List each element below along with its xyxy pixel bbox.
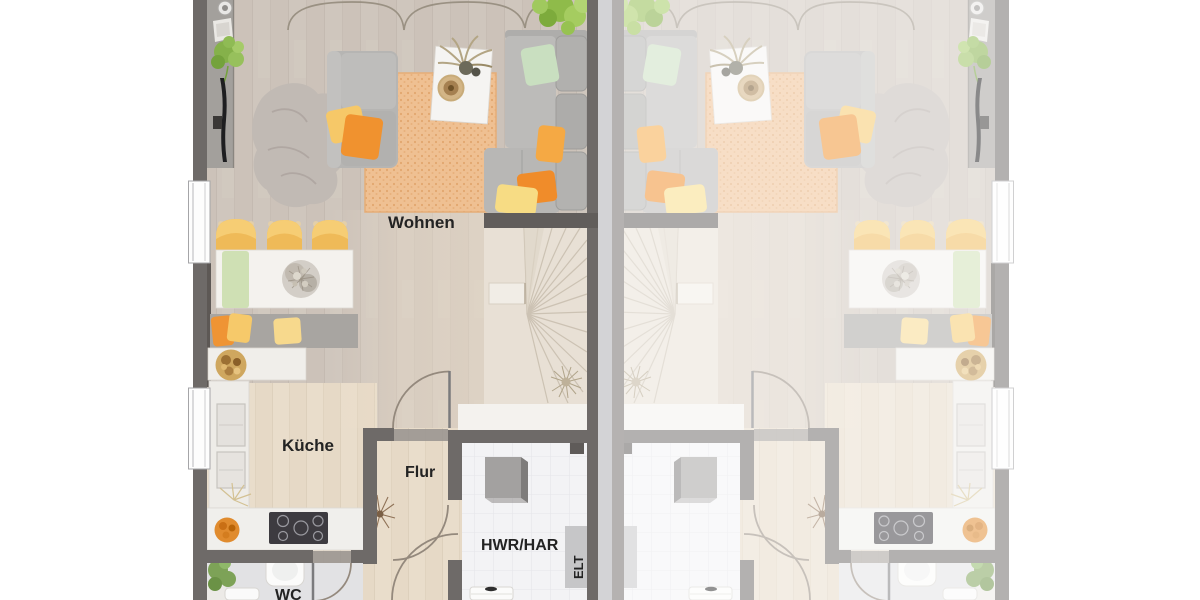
svg-text:Flur: Flur [405,464,435,481]
svg-text:Küche: Küche [282,436,334,455]
svg-text:ELT: ELT [571,555,586,579]
svg-text:WC: WC [275,587,302,600]
svg-text:Wohnen: Wohnen [388,213,455,232]
svg-text:HWR/HAR: HWR/HAR [481,537,559,554]
